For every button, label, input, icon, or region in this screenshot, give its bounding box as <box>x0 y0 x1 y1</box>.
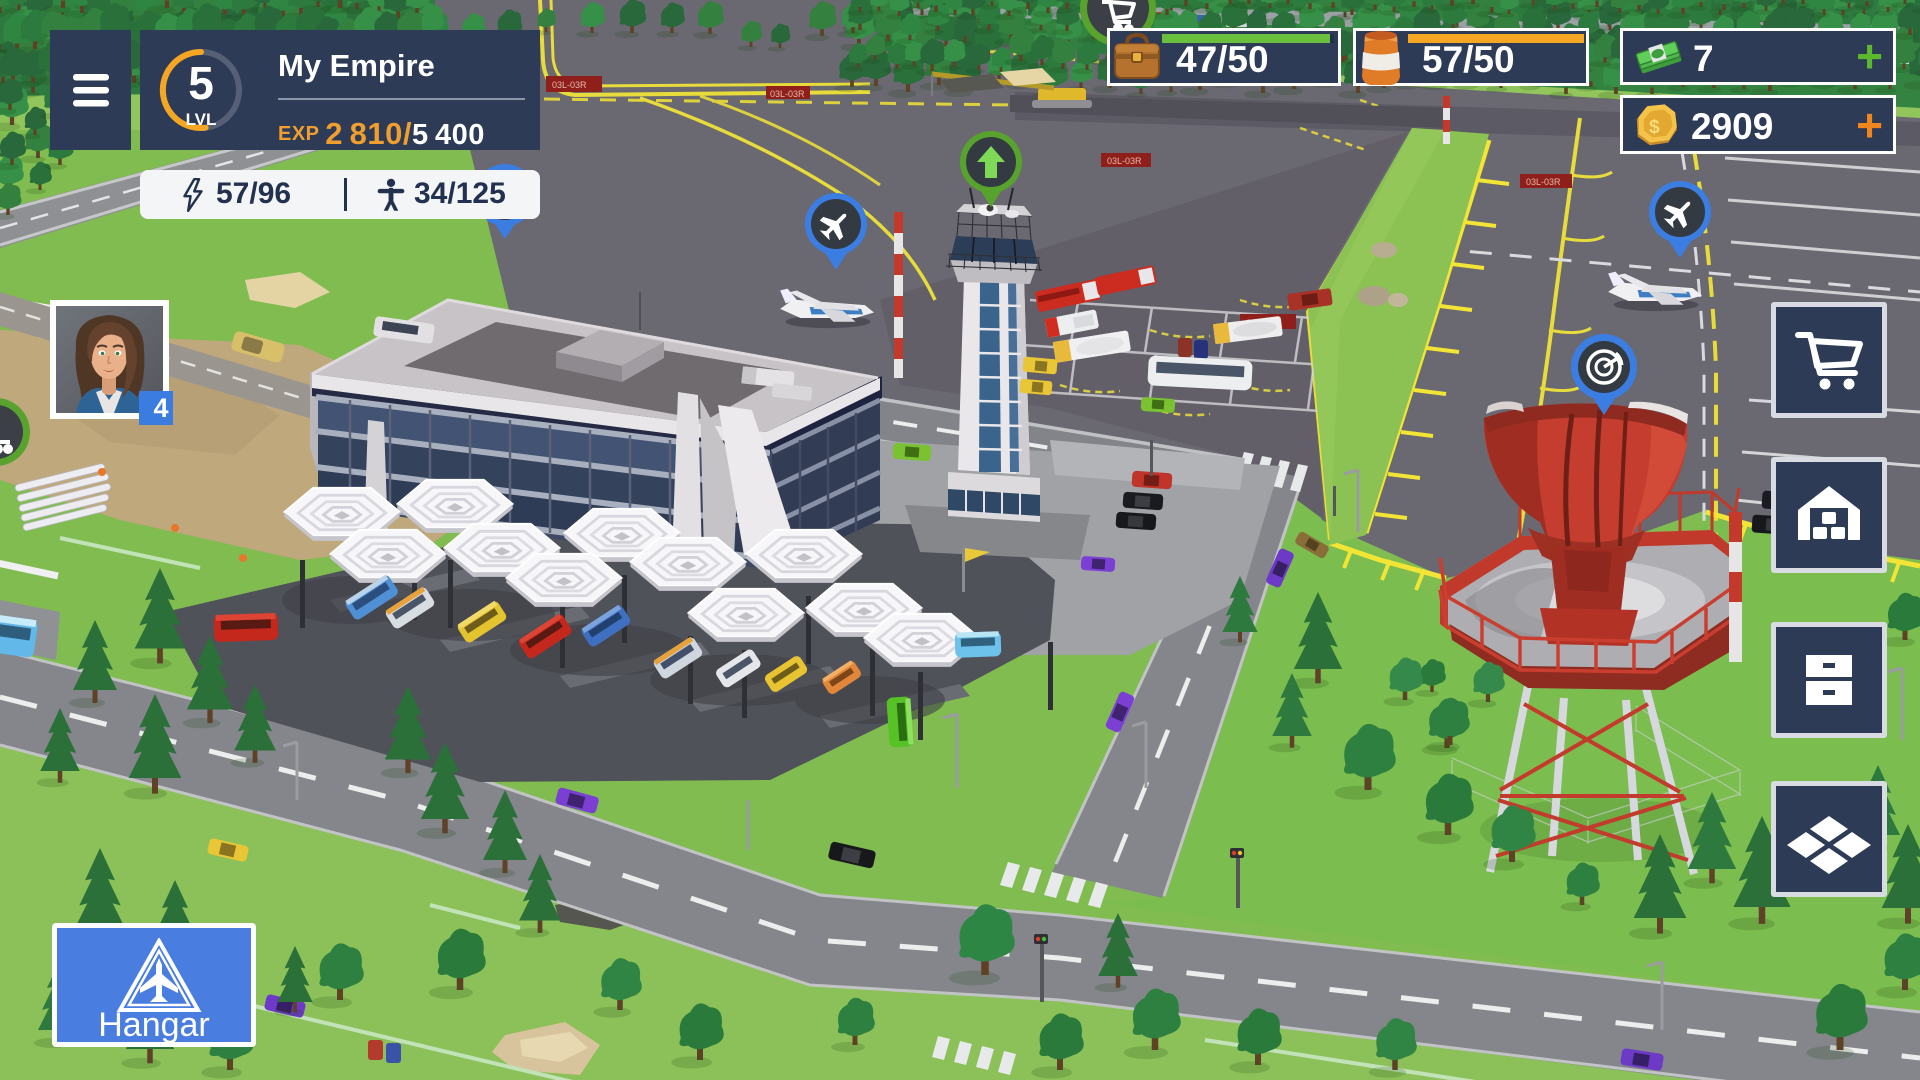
svg-text:03L-03R: 03L-03R <box>1526 177 1561 187</box>
svg-text:03L-03R: 03L-03R <box>1107 156 1142 166</box>
svg-text:$: $ <box>1649 117 1660 138</box>
svg-text:03L-03R: 03L-03R <box>552 80 587 90</box>
svg-text:03L-03R: 03L-03R <box>770 89 805 99</box>
